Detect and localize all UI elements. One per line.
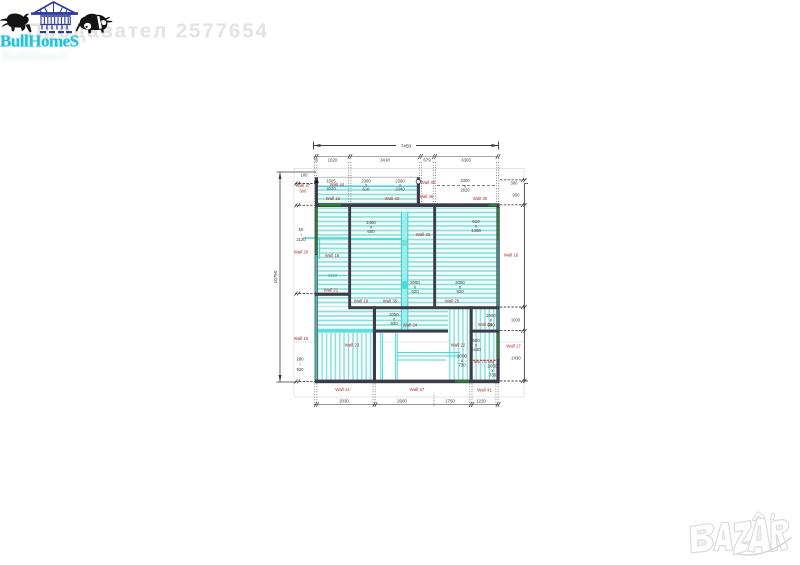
svg-text:Wall 24: Wall 24 — [403, 323, 418, 328]
svg-text:1920: 1920 — [328, 273, 338, 278]
svg-text:2340: 2340 — [395, 186, 405, 191]
svg-text:1400: 1400 — [471, 228, 481, 233]
svg-text:апр 7,5 анд: апр 7,5 анд — [474, 360, 495, 364]
svg-text:Wall 44: Wall 44 — [330, 182, 345, 187]
svg-text:730: 730 — [489, 373, 497, 378]
svg-text:BullHomeS: BullHomeS — [2, 49, 68, 64]
svg-text:BullHomeS: BullHomeS — [0, 32, 79, 51]
svg-text:300: 300 — [511, 181, 519, 186]
svg-text:↕: ↕ — [299, 362, 301, 367]
svg-text:Wall 16: Wall 16 — [504, 253, 519, 258]
svg-text:2430: 2430 — [511, 356, 521, 361]
svg-text:679: 679 — [423, 157, 431, 162]
svg-text:2900: 2900 — [397, 399, 407, 404]
svg-text:Wall 46: Wall 46 — [419, 194, 434, 199]
svg-text:Wall 35: Wall 35 — [383, 299, 398, 304]
svg-text:930: 930 — [390, 321, 398, 326]
svg-text:Wall 15: Wall 15 — [326, 196, 341, 201]
svg-text:2620: 2620 — [460, 187, 470, 192]
svg-text:1020: 1020 — [328, 157, 338, 162]
svg-text:Wall 22: Wall 22 — [451, 343, 466, 348]
svg-text:1630: 1630 — [471, 347, 481, 352]
svg-text:Wall 40: Wall 40 — [421, 180, 436, 185]
svg-text:1220: 1220 — [476, 399, 486, 404]
svg-text:3418: 3418 — [380, 157, 390, 162]
svg-text:920: 920 — [297, 367, 305, 372]
svg-text:Wall 30: Wall 30 — [473, 196, 488, 201]
svg-text:610: 610 — [363, 186, 371, 191]
svg-text:Wall 47: Wall 47 — [296, 183, 311, 188]
svg-text:Wall 19: Wall 19 — [354, 299, 369, 304]
svg-text:2030: 2030 — [339, 399, 349, 404]
svg-text:Wall 34: Wall 34 — [478, 322, 493, 327]
svg-text:2120: 2120 — [296, 237, 306, 242]
svg-text:1750: 1750 — [445, 399, 455, 404]
svg-text:Wall 26: Wall 26 — [416, 232, 431, 237]
svg-text:Wall 27: Wall 27 — [410, 387, 425, 392]
svg-text:1000: 1000 — [511, 318, 521, 323]
svg-text:950: 950 — [513, 193, 521, 198]
svg-text:Wall 43: Wall 43 — [385, 196, 400, 201]
svg-text:Wall 25: Wall 25 — [445, 299, 460, 304]
svg-text:Wall 20: Wall 20 — [294, 250, 309, 255]
svg-text:2300: 2300 — [460, 178, 470, 183]
svg-text:Wall 41: Wall 41 — [477, 388, 492, 393]
svg-text:Wall 17: Wall 17 — [506, 344, 521, 349]
svg-text:Wall 14: Wall 14 — [335, 387, 350, 392]
svg-text:7450: 7450 — [401, 144, 412, 149]
svg-text:50: 50 — [314, 158, 318, 162]
svg-text:Wall 15: Wall 15 — [294, 336, 309, 341]
svg-text:730: 730 — [458, 363, 466, 368]
svg-text:5x6: 5x6 — [299, 189, 307, 194]
svg-text:3303: 3303 — [461, 157, 471, 162]
svg-text:10750: 10750 — [273, 270, 278, 283]
svg-text:600: 600 — [367, 229, 375, 234]
svg-text:Wall 21: Wall 21 — [324, 288, 339, 293]
svg-text:620: 620 — [411, 289, 419, 294]
svg-text:Wall 23: Wall 23 — [345, 343, 360, 348]
svg-text:Wall 18: Wall 18 — [325, 253, 340, 258]
svg-text:100: 100 — [301, 173, 309, 178]
svg-text:920: 920 — [456, 289, 464, 294]
